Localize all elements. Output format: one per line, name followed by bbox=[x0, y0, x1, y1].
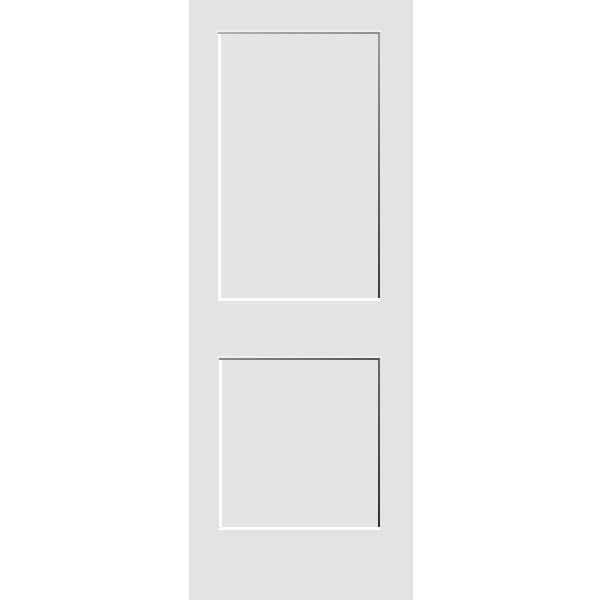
top-panel-left-highlight-edge bbox=[218, 34, 221, 301]
door-product-photo bbox=[0, 0, 600, 600]
top-panel-right-shadow-edge bbox=[378, 34, 380, 298]
bottom-panel-bottom-highlight-edge bbox=[219, 527, 380, 530]
door-bottom-panel bbox=[219, 358, 380, 530]
bottom-panel-right-shadow-edge bbox=[378, 360, 380, 527]
top-panel-bottom-highlight-edge bbox=[218, 298, 380, 301]
bottom-panel-top-shadow-edge bbox=[219, 358, 380, 360]
door-slab bbox=[189, 0, 413, 600]
top-panel-top-shadow-edge bbox=[218, 32, 380, 34]
bottom-panel-left-highlight-edge bbox=[219, 360, 222, 530]
door-top-panel bbox=[218, 32, 380, 301]
